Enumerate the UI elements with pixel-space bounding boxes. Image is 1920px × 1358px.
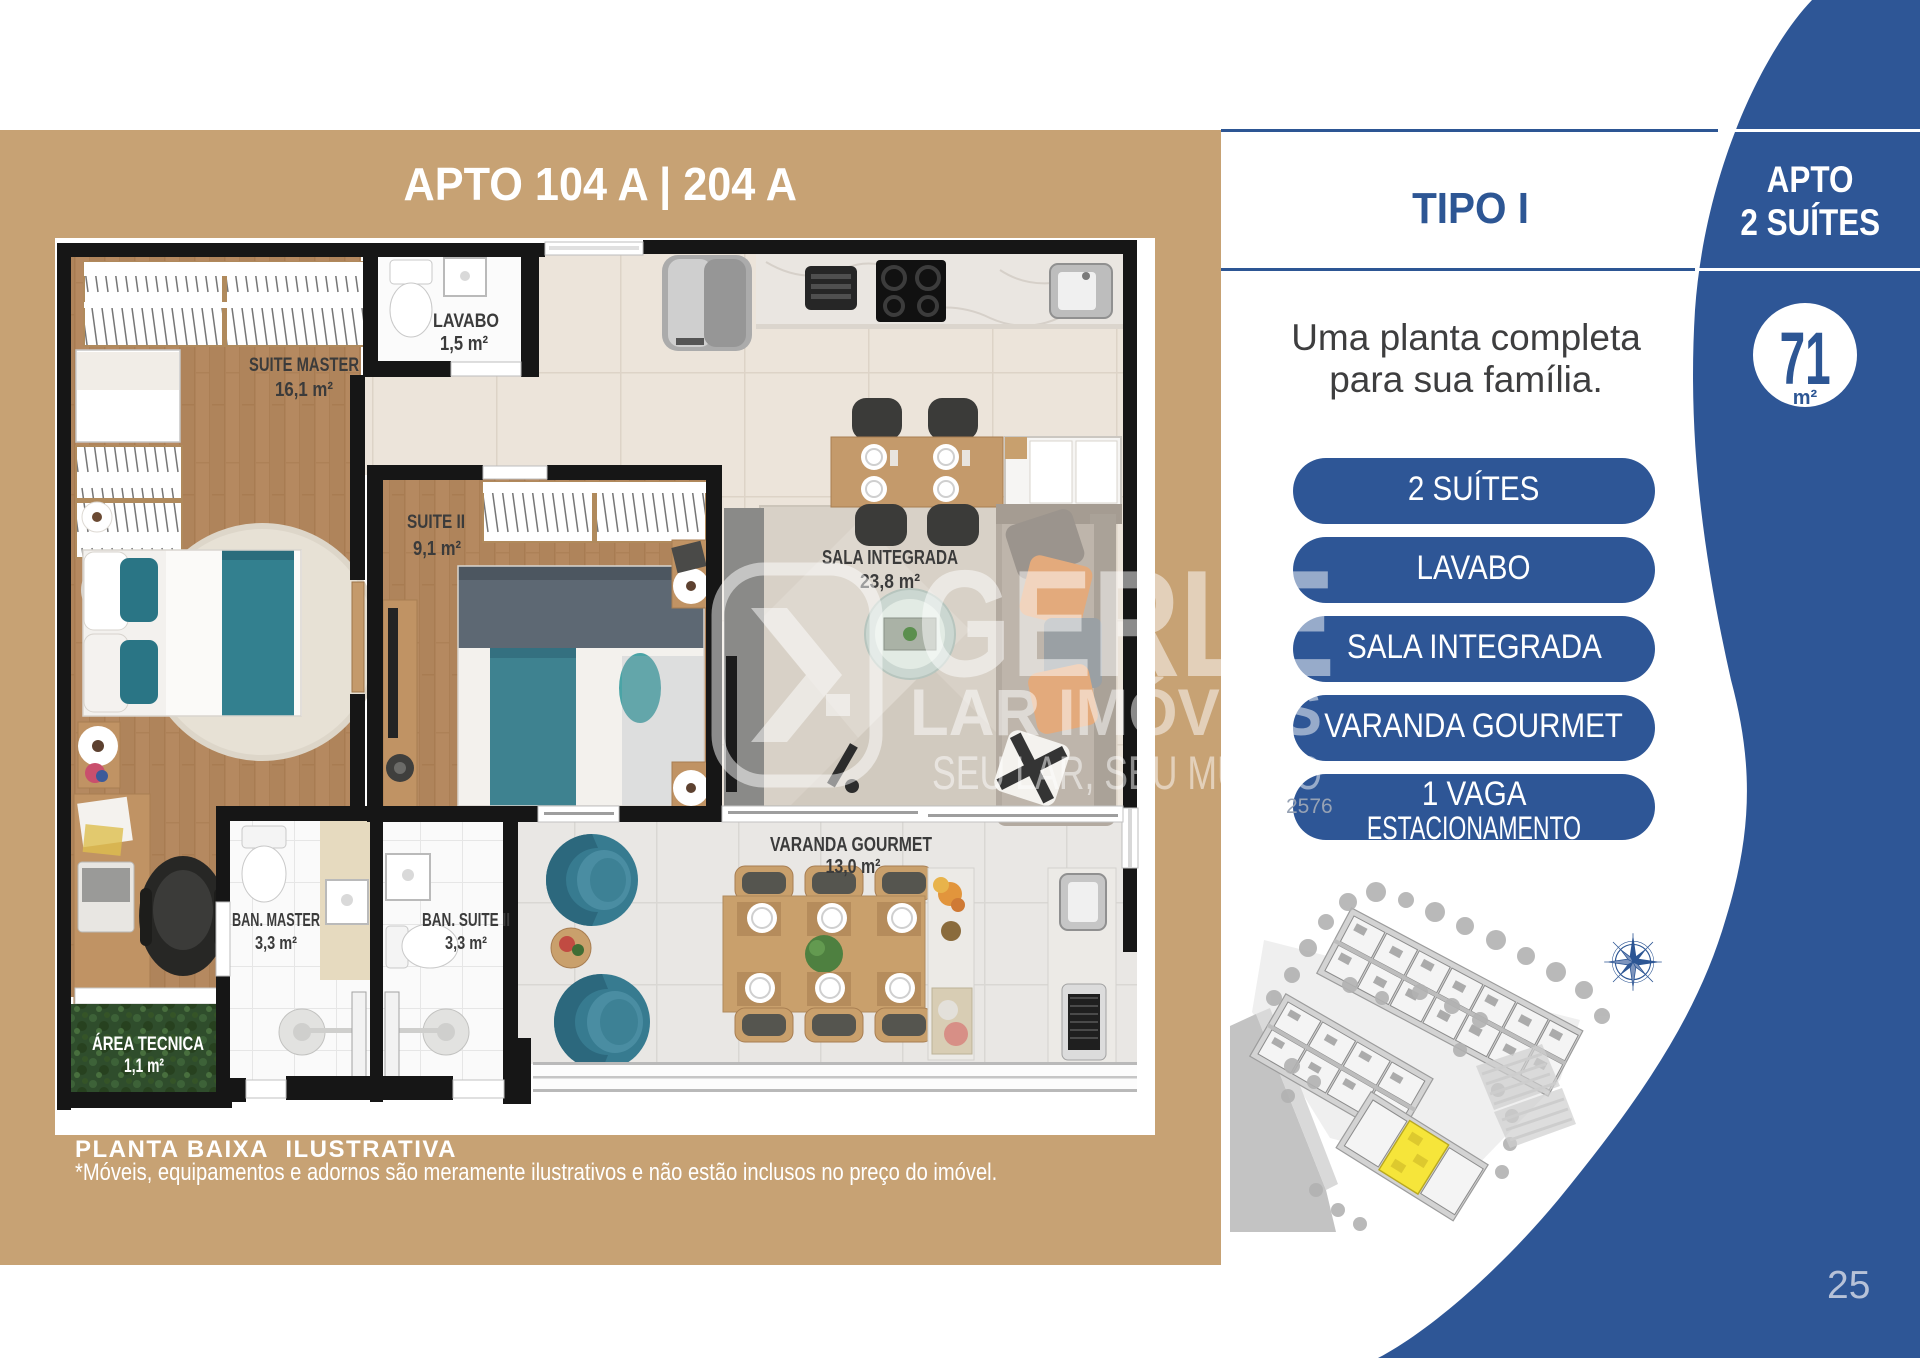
svg-text:23,8 m²: 23,8 m² [860, 571, 920, 593]
svg-text:13,0 m²: 13,0 m² [826, 856, 881, 878]
svg-text:3,3 m²: 3,3 m² [445, 933, 487, 953]
svg-text:16,1 m²: 16,1 m² [275, 379, 333, 401]
svg-text:1,5 m²: 1,5 m² [440, 333, 488, 355]
svg-text:LAVABO: LAVABO [433, 311, 499, 332]
svg-text:SALA INTEGRADA: SALA INTEGRADA [822, 547, 958, 569]
svg-text:ÁREA TECNICA: ÁREA TECNICA [92, 1033, 204, 1055]
svg-text:VARANDA GOURMET: VARANDA GOURMET [770, 834, 932, 856]
svg-text:1,1 m²: 1,1 m² [124, 1056, 164, 1077]
svg-text:BAN. SUITE II: BAN. SUITE II [422, 910, 510, 930]
svg-text:SUITE MASTER: SUITE MASTER [249, 355, 359, 376]
svg-text:SUITE II: SUITE II [407, 512, 465, 533]
svg-text:3,3 m²: 3,3 m² [255, 933, 297, 953]
svg-text:BAN. MASTER: BAN. MASTER [232, 910, 320, 930]
svg-text:9,1 m²: 9,1 m² [413, 538, 461, 560]
